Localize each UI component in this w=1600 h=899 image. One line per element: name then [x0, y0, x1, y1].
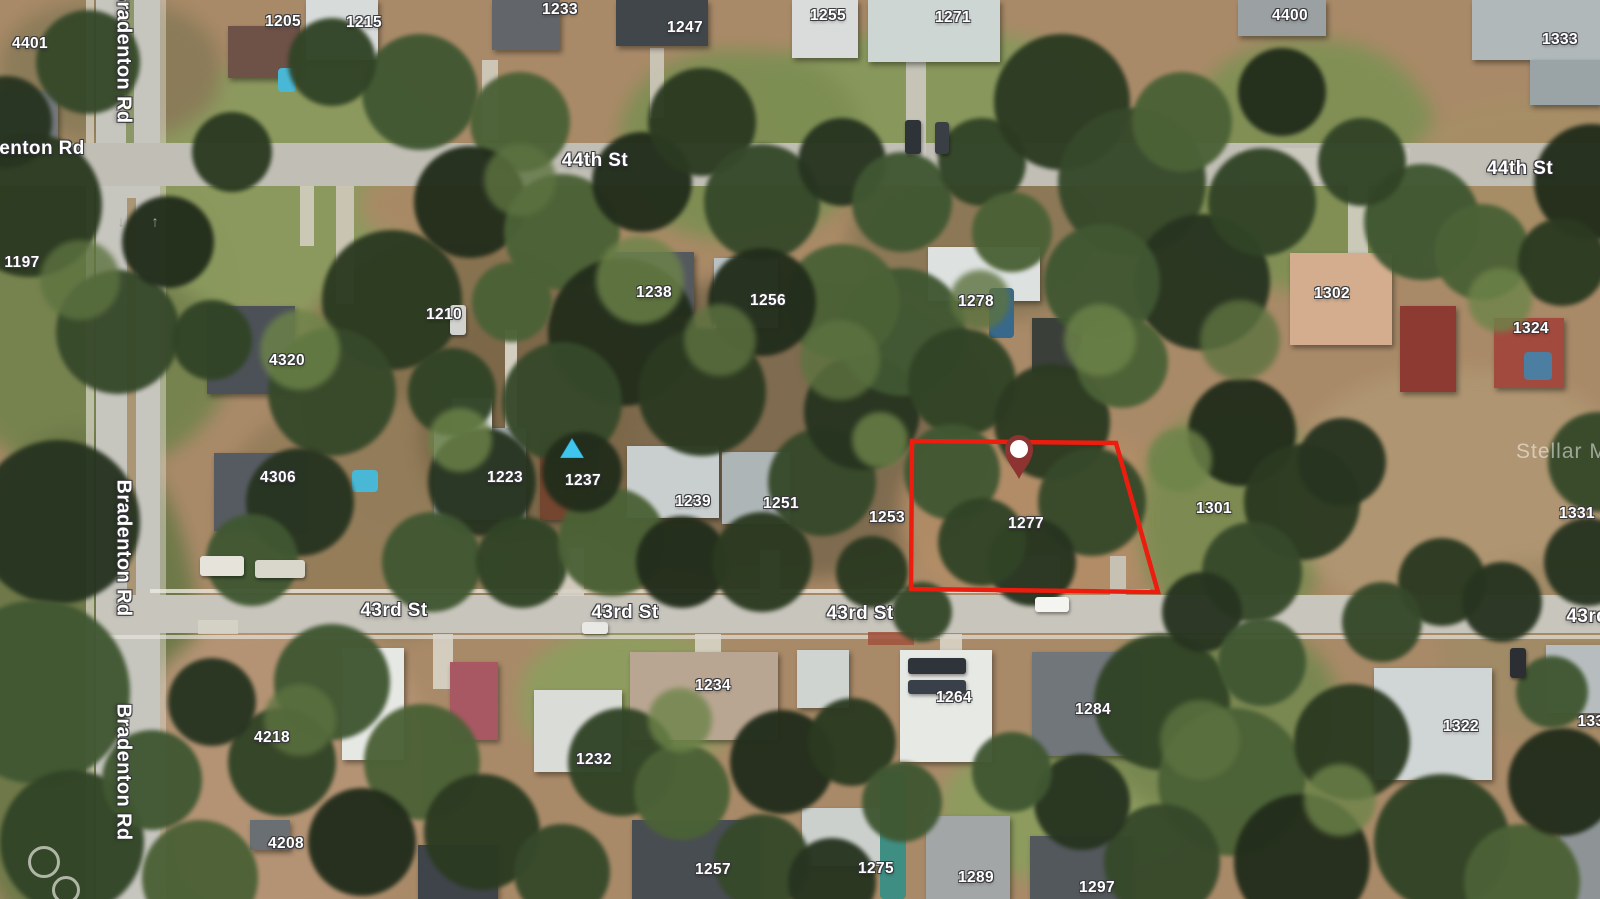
house-number-label: 1205: [265, 13, 301, 31]
house-number-label: 1302: [1314, 285, 1350, 303]
house-number-label: 1210: [426, 306, 462, 324]
house-number-label: 1297: [1079, 879, 1115, 897]
street-label: Bradenton Rd: [112, 479, 135, 616]
street-label: 43rd St: [591, 602, 658, 624]
house-number-label: 1284: [1075, 701, 1111, 719]
house-number-label: 1257: [695, 861, 731, 879]
house-number-label: 1289: [958, 869, 994, 887]
house-number-label: 1331: [1559, 505, 1595, 523]
house-number-label: 1234: [695, 677, 731, 695]
house-number-label: 1247: [667, 19, 703, 37]
house-number-label: 1215: [346, 14, 382, 32]
house-number-label: 4306: [260, 469, 296, 487]
house-number-label: 4320: [269, 352, 305, 370]
watermark-stellar-mls: Stellar MLS: [1516, 440, 1600, 464]
street-label: Bradenton Rd: [112, 703, 135, 840]
street-label: 43rd St: [826, 603, 893, 625]
street-label: 44th St: [562, 150, 628, 172]
house-number-label: 1253: [869, 509, 905, 527]
house-number-label: 1255: [810, 7, 846, 25]
house-number-label: 1256: [750, 292, 786, 310]
street-label: 44th St: [1487, 158, 1553, 180]
house-number-label: 1197: [4, 254, 39, 272]
house-number-label: 1239: [675, 493, 711, 511]
house-number-label: 1301: [1196, 500, 1232, 518]
house-number-label: 1324: [1513, 320, 1549, 338]
house-number-label: 1223: [487, 469, 523, 487]
label-layer: 4401120512151233124712551271440013331197…: [0, 0, 1600, 899]
house-number-label: 1333: [1542, 31, 1578, 49]
house-number-label: 133: [1577, 713, 1600, 731]
house-number-label: 4401: [12, 35, 48, 53]
street-label: 43rd St: [1566, 606, 1600, 628]
street-label: enton Rd: [0, 138, 85, 160]
house-number-label: 1277: [1008, 515, 1044, 533]
house-number-label: 1237: [565, 472, 601, 490]
house-number-label: 4218: [254, 729, 290, 747]
street-label: 43rd St: [360, 600, 427, 622]
house-number-label: 4208: [268, 835, 304, 853]
house-number-label: 1271: [935, 9, 971, 27]
house-number-label: 1322: [1443, 718, 1479, 736]
house-number-label: 1232: [576, 751, 612, 769]
house-number-label: 4400: [1272, 7, 1308, 25]
house-number-label: 1251: [763, 495, 799, 513]
house-number-label: 1275: [858, 860, 894, 878]
house-number-label: 1238: [636, 284, 672, 302]
satellite-map[interactable]: ↓↑ 4401120512151233124712551271440013331…: [0, 0, 1600, 899]
house-number-label: 1233: [542, 1, 578, 19]
house-number-label: 1264: [936, 689, 972, 707]
house-number-label: 1278: [958, 293, 994, 311]
street-label: Bradenton Rd: [112, 0, 135, 124]
